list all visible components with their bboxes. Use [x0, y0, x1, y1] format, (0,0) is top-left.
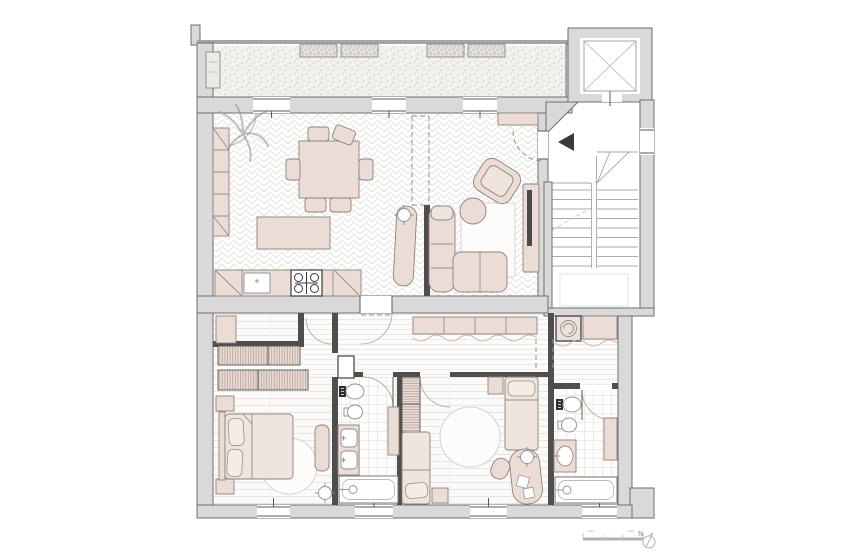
kitchen-counter [215, 270, 361, 296]
dining-table [299, 141, 359, 198]
pillow [405, 482, 428, 499]
bookshelf [213, 128, 229, 236]
bathtub [339, 476, 398, 503]
partition-corridor-west-upper [332, 313, 338, 353]
console-shelf [498, 113, 538, 125]
nightstand [432, 488, 448, 503]
chair [359, 159, 373, 180]
double-bed [219, 412, 293, 480]
washing-machine [556, 316, 581, 341]
chair [330, 198, 351, 212]
side-table [460, 198, 486, 224]
planter-box [341, 44, 378, 57]
partition-laundry-bath2-b [612, 383, 618, 389]
wall-pier-southeast [630, 488, 654, 518]
headboard [219, 412, 225, 480]
partition-bathroom1-west [332, 377, 338, 505]
sink-counter [554, 440, 576, 472]
closet-cabinet [216, 316, 236, 343]
bench [315, 425, 329, 471]
kitchen-island [257, 217, 330, 249]
nightstand [488, 377, 503, 394]
pillow [508, 381, 535, 396]
toilet [339, 384, 364, 399]
wall-cabinet [604, 418, 617, 460]
window-landing-east [640, 128, 654, 155]
balcony-railing [197, 40, 572, 44]
partition-corridor-south-b [393, 372, 420, 377]
paper [523, 487, 535, 499]
chair [308, 127, 329, 141]
scale-bar [583, 531, 643, 539]
chair [286, 159, 300, 180]
cooktop [291, 270, 322, 296]
wardrobe-row [413, 317, 537, 334]
elevator-door-gap [602, 94, 622, 102]
pillow [228, 418, 244, 446]
double-sink-vanity [338, 425, 359, 475]
wall-stair-bottom [544, 308, 654, 316]
single-bed-2 [505, 377, 538, 450]
planter-box [468, 44, 505, 57]
wardrobe-row-1 [218, 346, 300, 365]
service-shaft [338, 356, 354, 378]
partition-corridor-south-c [450, 372, 548, 377]
tv-panel [523, 184, 539, 272]
balcony-floor [207, 46, 570, 97]
pillow [227, 449, 243, 477]
single-bed-1 [402, 432, 430, 504]
bathtub [555, 477, 617, 503]
tall-cabinet [388, 407, 399, 455]
planter-box [300, 44, 337, 57]
floor-plan-page: N [0, 0, 853, 560]
laundry-counter [583, 316, 617, 339]
side-planter [206, 52, 220, 88]
paper [516, 475, 529, 488]
chair [305, 198, 326, 212]
wardrobe [402, 377, 420, 432]
north-label: N [638, 530, 643, 538]
round-rug [440, 407, 500, 467]
wardrobe-row-2 [218, 370, 308, 390]
wall-west [197, 43, 213, 518]
partition-laundry-bath2-a [554, 383, 580, 389]
floor-plan-drawing: N [0, 0, 853, 560]
annotations: N [583, 530, 655, 548]
nightstand [216, 479, 234, 494]
planter-box [427, 44, 464, 57]
nightstand [216, 396, 234, 411]
wall-east-lower [618, 316, 632, 506]
toilet [556, 397, 581, 412]
